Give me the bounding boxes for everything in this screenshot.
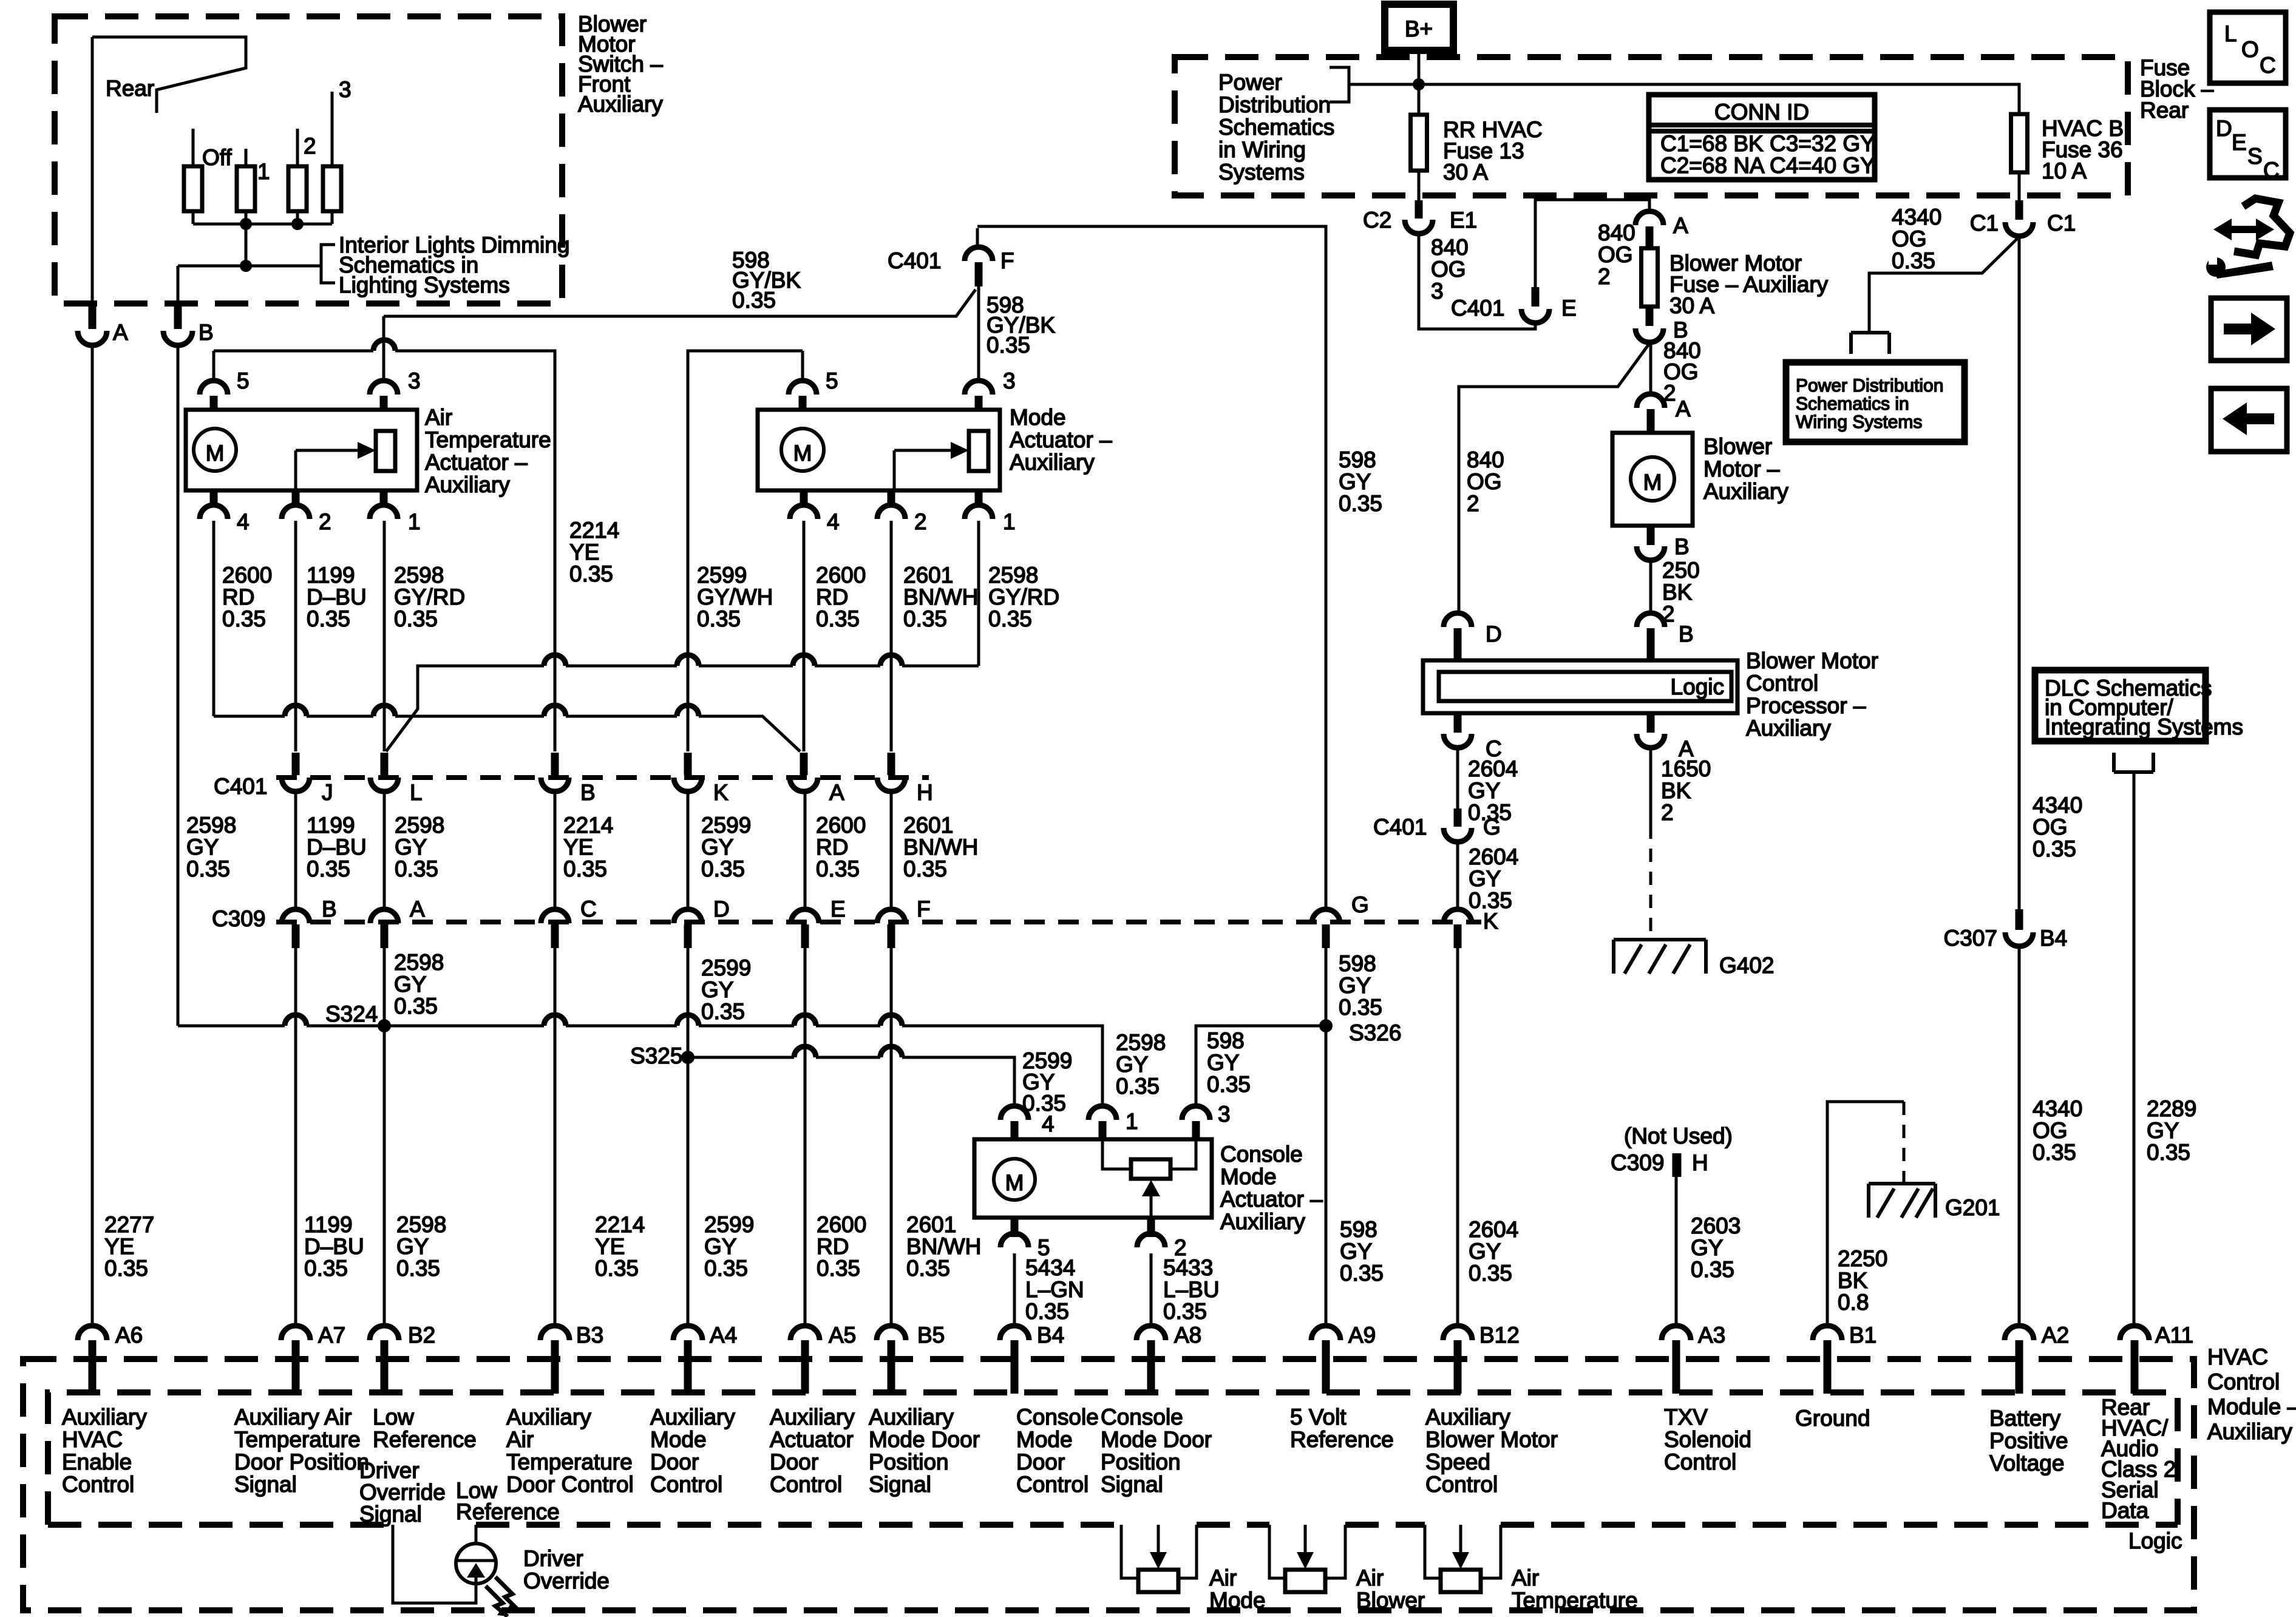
svg-text:Enable: Enable bbox=[62, 1449, 132, 1474]
svg-text:GY: GY bbox=[1339, 973, 1371, 998]
svg-text:B: B bbox=[1674, 534, 1690, 559]
svg-text:C: C bbox=[2260, 53, 2276, 78]
svg-text:Actuator –: Actuator – bbox=[425, 450, 528, 475]
svg-text:C307: C307 bbox=[1944, 926, 1997, 951]
svg-text:Actuator –: Actuator – bbox=[1220, 1187, 1323, 1212]
svg-text:2277: 2277 bbox=[104, 1212, 154, 1237]
svg-text:Schematics in: Schematics in bbox=[1796, 394, 1909, 414]
svg-text:Logic: Logic bbox=[2128, 1528, 2182, 1553]
svg-text:M: M bbox=[1005, 1170, 1024, 1195]
svg-text:GY: GY bbox=[1469, 1239, 1501, 1264]
svg-text:0.35: 0.35 bbox=[701, 999, 745, 1024]
svg-text:Control: Control bbox=[2207, 1369, 2280, 1394]
svg-text:D–BU: D–BU bbox=[307, 835, 367, 859]
svg-text:Ground: Ground bbox=[1795, 1406, 1870, 1431]
svg-text:2: 2 bbox=[1467, 491, 1479, 516]
svg-text:2289: 2289 bbox=[2147, 1096, 2196, 1121]
svg-text:Positive: Positive bbox=[1989, 1428, 2068, 1453]
svg-text:0.35: 0.35 bbox=[903, 856, 947, 881]
svg-text:Control: Control bbox=[1425, 1472, 1498, 1497]
svg-text:Auxiliary: Auxiliary bbox=[869, 1405, 954, 1429]
svg-text:Control: Control bbox=[770, 1472, 842, 1497]
svg-text:0.35: 0.35 bbox=[987, 333, 1030, 358]
svg-text:GY/WH: GY/WH bbox=[697, 585, 773, 609]
svg-text:0.35: 0.35 bbox=[2033, 1140, 2076, 1165]
svg-text:Mode: Mode bbox=[1016, 1427, 1073, 1452]
svg-text:0.35: 0.35 bbox=[1892, 248, 1935, 273]
svg-text:0.35: 0.35 bbox=[395, 856, 438, 881]
svg-text:Auxiliary: Auxiliary bbox=[650, 1405, 735, 1429]
svg-text:Auxiliary: Auxiliary bbox=[62, 1405, 147, 1429]
svg-text:Air: Air bbox=[1209, 1565, 1237, 1590]
svg-text:Air: Air bbox=[425, 405, 452, 430]
svg-text:Rear: Rear bbox=[2140, 98, 2189, 123]
svg-text:2599: 2599 bbox=[704, 1212, 754, 1237]
svg-text:A6: A6 bbox=[115, 1323, 143, 1347]
svg-text:BN/WH: BN/WH bbox=[906, 1234, 981, 1259]
svg-text:0.35: 0.35 bbox=[2147, 1140, 2190, 1165]
svg-text:Wiring Systems: Wiring Systems bbox=[1796, 412, 1922, 432]
svg-text:Mode Door: Mode Door bbox=[869, 1427, 980, 1452]
svg-text:598: 598 bbox=[1340, 1217, 1377, 1242]
svg-text:M: M bbox=[1643, 470, 1662, 495]
svg-text:Systems: Systems bbox=[1218, 160, 1305, 185]
svg-text:GY: GY bbox=[186, 835, 219, 859]
svg-text:C401: C401 bbox=[888, 248, 941, 273]
svg-text:A4: A4 bbox=[710, 1323, 737, 1347]
svg-text:OG: OG bbox=[2033, 1118, 2068, 1143]
svg-text:0.35: 0.35 bbox=[104, 1256, 148, 1281]
svg-text:2598: 2598 bbox=[396, 1212, 446, 1237]
svg-text:A: A bbox=[829, 780, 844, 805]
svg-text:GY: GY bbox=[1340, 1239, 1372, 1264]
svg-text:Signal: Signal bbox=[359, 1502, 422, 1527]
svg-text:Integrating Systems: Integrating Systems bbox=[2045, 714, 2243, 739]
svg-text:GY: GY bbox=[1691, 1235, 1723, 1260]
svg-text:GY: GY bbox=[701, 835, 733, 859]
svg-text:5434: 5434 bbox=[1025, 1255, 1075, 1280]
svg-text:A: A bbox=[410, 897, 425, 921]
svg-text:B: B bbox=[580, 780, 596, 805]
svg-text:0.35: 0.35 bbox=[903, 606, 947, 631]
svg-text:Air: Air bbox=[1512, 1565, 1539, 1590]
svg-text:0.35: 0.35 bbox=[563, 856, 607, 881]
svg-text:1199: 1199 bbox=[307, 813, 355, 838]
svg-text:Processor –: Processor – bbox=[1746, 693, 1866, 718]
svg-text:D–BU: D–BU bbox=[304, 1234, 364, 1259]
svg-text:Position: Position bbox=[1101, 1449, 1181, 1474]
svg-text:2250: 2250 bbox=[1838, 1246, 1887, 1271]
svg-text:L–GN: L–GN bbox=[1025, 1277, 1084, 1302]
svg-text:0.35: 0.35 bbox=[595, 1256, 639, 1281]
svg-text:G201: G201 bbox=[1945, 1195, 2000, 1220]
svg-text:D: D bbox=[2216, 116, 2232, 141]
svg-text:1: 1 bbox=[1003, 509, 1016, 534]
svg-text:Door Control: Door Control bbox=[506, 1472, 634, 1497]
svg-text:Temperature: Temperature bbox=[506, 1449, 633, 1474]
svg-text:HVAC: HVAC bbox=[2207, 1344, 2268, 1369]
svg-text:Schematics: Schematics bbox=[1218, 115, 1334, 140]
svg-text:Console: Console bbox=[1101, 1405, 1183, 1429]
svg-text:F: F bbox=[917, 897, 931, 921]
svg-text:Power Distribution: Power Distribution bbox=[1796, 376, 1943, 396]
svg-text:BN/WH: BN/WH bbox=[903, 835, 978, 859]
svg-text:Reference: Reference bbox=[456, 1499, 560, 1524]
svg-text:0.35: 0.35 bbox=[304, 1256, 348, 1281]
svg-text:GY: GY bbox=[701, 977, 733, 1002]
svg-text:Console: Console bbox=[1016, 1405, 1099, 1429]
svg-text:E: E bbox=[2232, 130, 2247, 155]
svg-text:10 A: 10 A bbox=[2042, 158, 2087, 183]
svg-text:OG: OG bbox=[1598, 242, 1633, 267]
svg-text:2600: 2600 bbox=[222, 563, 272, 588]
svg-text:B12: B12 bbox=[1479, 1323, 1520, 1347]
svg-text:0.35: 0.35 bbox=[1691, 1257, 1734, 1282]
svg-text:GY: GY bbox=[396, 1234, 429, 1259]
svg-text:B4: B4 bbox=[2040, 926, 2067, 951]
svg-text:GY/RD: GY/RD bbox=[394, 585, 465, 609]
svg-text:0.35: 0.35 bbox=[2033, 836, 2076, 861]
svg-text:BN/WH: BN/WH bbox=[903, 585, 978, 609]
svg-text:Signal: Signal bbox=[234, 1472, 297, 1497]
svg-text:2600: 2600 bbox=[817, 1212, 866, 1237]
svg-text:3: 3 bbox=[408, 368, 421, 393]
svg-text:2601: 2601 bbox=[903, 563, 953, 588]
svg-text:Logic: Logic bbox=[1671, 674, 1724, 699]
svg-text:0.35: 0.35 bbox=[697, 606, 741, 631]
svg-text:Console: Console bbox=[1220, 1142, 1303, 1167]
svg-text:BK: BK bbox=[1661, 778, 1691, 803]
svg-text:RD: RD bbox=[817, 1234, 849, 1259]
svg-text:0.35: 0.35 bbox=[1025, 1299, 1069, 1324]
svg-text:OG: OG bbox=[1467, 469, 1502, 494]
svg-text:Temperature: Temperature bbox=[425, 427, 551, 452]
svg-text:Auxiliary: Auxiliary bbox=[1010, 450, 1095, 475]
svg-text:C2: C2 bbox=[1363, 208, 1391, 232]
svg-text:B2: B2 bbox=[408, 1323, 435, 1347]
svg-text:598: 598 bbox=[1339, 951, 1376, 976]
svg-text:L: L bbox=[2224, 21, 2237, 46]
svg-text:S325: S325 bbox=[630, 1043, 682, 1068]
svg-text:0.35: 0.35 bbox=[816, 606, 860, 631]
svg-text:0.35: 0.35 bbox=[988, 606, 1032, 631]
svg-text:3: 3 bbox=[1003, 368, 1016, 393]
svg-text:Module –: Module – bbox=[2207, 1394, 2296, 1419]
svg-text:E1: E1 bbox=[1450, 208, 1477, 232]
svg-text:2598: 2598 bbox=[394, 563, 444, 588]
svg-text:C401: C401 bbox=[1373, 815, 1427, 839]
svg-text:Control: Control bbox=[62, 1472, 134, 1497]
svg-text:C401: C401 bbox=[1451, 296, 1504, 320]
svg-text:0.35: 0.35 bbox=[394, 606, 438, 631]
svg-text:3: 3 bbox=[339, 77, 352, 102]
svg-text:5: 5 bbox=[826, 368, 838, 393]
svg-text:Blower Motor: Blower Motor bbox=[1746, 648, 1878, 673]
svg-text:GY: GY bbox=[2147, 1118, 2179, 1143]
svg-text:D: D bbox=[713, 897, 730, 921]
svg-text:0.35: 0.35 bbox=[1469, 888, 1512, 913]
svg-text:Auxiliary: Auxiliary bbox=[1746, 716, 1831, 741]
svg-text:2601: 2601 bbox=[906, 1212, 956, 1237]
svg-text:Mode: Mode bbox=[1220, 1164, 1277, 1189]
svg-text:Driver: Driver bbox=[359, 1458, 419, 1483]
svg-text:A9: A9 bbox=[1348, 1323, 1376, 1347]
svg-text:E: E bbox=[830, 897, 846, 921]
svg-text:30 A: 30 A bbox=[1669, 293, 1714, 318]
svg-text:Signal: Signal bbox=[1101, 1472, 1163, 1497]
svg-text:Speed: Speed bbox=[1425, 1449, 1490, 1474]
svg-text:D–BU: D–BU bbox=[307, 585, 367, 609]
svg-text:GY/RD: GY/RD bbox=[988, 585, 1059, 609]
svg-text:2214: 2214 bbox=[569, 518, 619, 543]
svg-text:2604: 2604 bbox=[1469, 844, 1518, 869]
svg-text:4: 4 bbox=[1042, 1111, 1055, 1136]
svg-text:Voltage: Voltage bbox=[1989, 1451, 2064, 1476]
svg-text:0.35: 0.35 bbox=[701, 856, 745, 881]
svg-text:C1=68 BK: C1=68 BK bbox=[1660, 131, 1764, 156]
svg-text:Mode: Mode bbox=[1010, 405, 1066, 430]
svg-text:G: G bbox=[1351, 892, 1369, 917]
svg-text:2600: 2600 bbox=[816, 563, 866, 588]
svg-text:K: K bbox=[713, 780, 729, 805]
svg-text:Reference: Reference bbox=[373, 1427, 477, 1452]
svg-text:GY: GY bbox=[1207, 1050, 1239, 1075]
svg-text:Reference: Reference bbox=[1290, 1427, 1394, 1452]
svg-text:OG: OG bbox=[1892, 226, 1927, 251]
svg-text:C2=68 NA: C2=68 NA bbox=[1660, 153, 1765, 178]
svg-text:A: A bbox=[113, 320, 128, 345]
svg-text:Auxiliary: Auxiliary bbox=[1220, 1209, 1305, 1234]
svg-text:Blower: Blower bbox=[1356, 1588, 1425, 1613]
svg-text:Power: Power bbox=[1218, 70, 1282, 95]
svg-text:0.35: 0.35 bbox=[1116, 1074, 1160, 1099]
svg-text:5: 5 bbox=[237, 368, 250, 393]
svg-text:H: H bbox=[917, 780, 933, 805]
svg-text:5 Volt: 5 Volt bbox=[1290, 1405, 1347, 1429]
svg-text:Lighting Systems: Lighting Systems bbox=[339, 273, 510, 297]
svg-text:B1: B1 bbox=[1849, 1323, 1877, 1347]
svg-text:C309: C309 bbox=[212, 906, 265, 931]
svg-text:H: H bbox=[1692, 1150, 1708, 1175]
svg-text:G: G bbox=[1483, 815, 1501, 839]
svg-text:Door: Door bbox=[770, 1449, 818, 1474]
svg-text:A3: A3 bbox=[1698, 1323, 1725, 1347]
svg-text:OG: OG bbox=[2033, 815, 2068, 839]
svg-text:Rear: Rear bbox=[106, 76, 154, 101]
svg-text:2604: 2604 bbox=[1469, 1217, 1518, 1242]
svg-text:B: B bbox=[322, 897, 337, 921]
svg-text:2598: 2598 bbox=[186, 813, 236, 838]
svg-text:840: 840 bbox=[1431, 235, 1469, 260]
svg-text:4: 4 bbox=[827, 509, 840, 534]
svg-text:250: 250 bbox=[1662, 558, 1700, 583]
svg-text:2599: 2599 bbox=[701, 813, 751, 838]
svg-text:Control: Control bbox=[1016, 1472, 1089, 1497]
svg-text:0.35: 0.35 bbox=[704, 1256, 748, 1281]
svg-text:598: 598 bbox=[1207, 1028, 1245, 1053]
svg-text:0.35: 0.35 bbox=[1339, 491, 1382, 516]
svg-text:Temperature: Temperature bbox=[1512, 1588, 1638, 1613]
svg-text:S324: S324 bbox=[325, 1002, 378, 1026]
svg-text:Control: Control bbox=[650, 1472, 722, 1497]
svg-text:Auxiliary: Auxiliary bbox=[770, 1405, 855, 1429]
svg-text:C: C bbox=[2263, 158, 2280, 183]
svg-text:Control: Control bbox=[1664, 1449, 1736, 1474]
svg-text:Door: Door bbox=[650, 1449, 699, 1474]
svg-text:A: A bbox=[1673, 213, 1688, 238]
svg-text:S: S bbox=[2247, 144, 2263, 169]
svg-text:A11: A11 bbox=[2155, 1323, 2193, 1347]
svg-text:Solenoid: Solenoid bbox=[1664, 1427, 1751, 1452]
svg-text:YE: YE bbox=[104, 1234, 134, 1259]
svg-text:2598: 2598 bbox=[1116, 1030, 1166, 1055]
svg-text:2: 2 bbox=[914, 509, 927, 534]
svg-text:in Wiring: in Wiring bbox=[1218, 137, 1306, 162]
svg-text:3: 3 bbox=[1218, 1102, 1231, 1127]
svg-text:0.35: 0.35 bbox=[1469, 1261, 1512, 1286]
svg-text:4340: 4340 bbox=[1892, 205, 1941, 229]
svg-text:C: C bbox=[580, 897, 597, 921]
svg-text:BK: BK bbox=[1662, 580, 1693, 605]
svg-text:1650: 1650 bbox=[1661, 756, 1711, 781]
svg-text:5433: 5433 bbox=[1163, 1255, 1213, 1280]
svg-text:3: 3 bbox=[1431, 279, 1444, 303]
svg-text:Blower: Blower bbox=[1703, 434, 1772, 459]
svg-text:A2: A2 bbox=[2042, 1323, 2069, 1347]
svg-text:OG: OG bbox=[1431, 257, 1466, 282]
svg-text:2214: 2214 bbox=[563, 813, 613, 838]
svg-text:Door: Door bbox=[1016, 1449, 1065, 1474]
svg-text:2604: 2604 bbox=[1468, 756, 1518, 781]
svg-text:0.35: 0.35 bbox=[732, 288, 776, 313]
svg-text:C309: C309 bbox=[1611, 1150, 1664, 1175]
svg-text:B4: B4 bbox=[1037, 1323, 1064, 1347]
svg-text:B5: B5 bbox=[917, 1323, 945, 1347]
svg-text:YE: YE bbox=[569, 540, 599, 564]
svg-text:E: E bbox=[1561, 296, 1577, 320]
svg-text:4340: 4340 bbox=[2033, 793, 2082, 818]
svg-text:0.35: 0.35 bbox=[307, 856, 350, 881]
svg-text:RD: RD bbox=[222, 585, 254, 609]
svg-text:0.8: 0.8 bbox=[1838, 1290, 1869, 1315]
svg-text:Blower Motor: Blower Motor bbox=[1425, 1427, 1558, 1452]
svg-text:S326: S326 bbox=[1349, 1020, 1401, 1045]
svg-text:2600: 2600 bbox=[816, 813, 866, 838]
svg-text:YE: YE bbox=[595, 1234, 625, 1259]
svg-text:Mode: Mode bbox=[650, 1427, 707, 1452]
svg-text:2: 2 bbox=[304, 134, 316, 158]
svg-text:Air: Air bbox=[506, 1427, 534, 1452]
svg-text:J: J bbox=[322, 780, 333, 805]
svg-text:RD: RD bbox=[816, 835, 848, 859]
svg-text:Motor –: Motor – bbox=[1703, 456, 1780, 481]
svg-text:0.35: 0.35 bbox=[569, 561, 613, 586]
svg-text:Control: Control bbox=[1746, 671, 1818, 696]
svg-text:2: 2 bbox=[1598, 264, 1611, 289]
svg-text:GY: GY bbox=[1339, 469, 1371, 494]
svg-text:B3: B3 bbox=[576, 1323, 603, 1347]
svg-text:0.35: 0.35 bbox=[906, 1256, 950, 1281]
svg-text:A: A bbox=[1676, 396, 1691, 421]
svg-text:1: 1 bbox=[1126, 1109, 1138, 1134]
svg-text:2601: 2601 bbox=[903, 813, 953, 838]
svg-text:M: M bbox=[206, 441, 225, 466]
svg-text:GY: GY bbox=[1469, 866, 1501, 891]
svg-text:Auxiliary Air: Auxiliary Air bbox=[234, 1405, 352, 1429]
svg-text:4: 4 bbox=[237, 509, 250, 534]
svg-text:Distribution: Distribution bbox=[1218, 92, 1331, 117]
svg-text:C1: C1 bbox=[2047, 211, 2076, 236]
svg-text:0.35: 0.35 bbox=[396, 1256, 440, 1281]
svg-text:Position: Position bbox=[869, 1449, 949, 1474]
svg-text:0.35: 0.35 bbox=[394, 994, 438, 1019]
svg-text:D: D bbox=[1486, 622, 1502, 646]
svg-text:L: L bbox=[410, 780, 423, 805]
svg-text:1199: 1199 bbox=[304, 1212, 353, 1237]
svg-text:Auxiliary: Auxiliary bbox=[1425, 1405, 1510, 1429]
svg-text:Actuator: Actuator bbox=[770, 1427, 854, 1452]
svg-text:2599: 2599 bbox=[701, 955, 751, 980]
svg-text:0.35: 0.35 bbox=[1207, 1072, 1251, 1097]
svg-text:CONN ID: CONN ID bbox=[1714, 100, 1809, 124]
svg-text:2598: 2598 bbox=[395, 813, 444, 838]
svg-text:0.35: 0.35 bbox=[1163, 1299, 1207, 1324]
svg-text:C401: C401 bbox=[214, 774, 267, 799]
svg-text:A7: A7 bbox=[318, 1323, 345, 1347]
svg-text:840: 840 bbox=[1598, 220, 1635, 245]
svg-text:2598: 2598 bbox=[394, 950, 444, 975]
svg-text:Override: Override bbox=[359, 1480, 446, 1505]
svg-text:Auxiliary: Auxiliary bbox=[578, 92, 663, 117]
svg-text:F: F bbox=[1000, 248, 1014, 273]
svg-text:A5: A5 bbox=[829, 1323, 856, 1347]
svg-text:2599: 2599 bbox=[697, 563, 747, 588]
svg-text:HVAC: HVAC bbox=[62, 1427, 123, 1452]
svg-text:2214: 2214 bbox=[595, 1212, 645, 1237]
svg-text:Battery: Battery bbox=[1989, 1406, 2061, 1431]
svg-text:GY: GY bbox=[395, 835, 427, 859]
svg-text:4340: 4340 bbox=[2033, 1096, 2082, 1121]
svg-text:YE: YE bbox=[563, 835, 593, 859]
svg-text:0.35: 0.35 bbox=[816, 856, 860, 881]
svg-text:G402: G402 bbox=[1719, 953, 1775, 978]
svg-text:Signal: Signal bbox=[869, 1472, 931, 1497]
svg-text:2598: 2598 bbox=[988, 563, 1038, 588]
svg-text:Auxiliary: Auxiliary bbox=[425, 472, 510, 497]
svg-text:B+: B+ bbox=[1405, 16, 1433, 41]
svg-text:GY: GY bbox=[1468, 778, 1500, 803]
svg-text:GY: GY bbox=[704, 1234, 736, 1259]
svg-text:2603: 2603 bbox=[1691, 1213, 1741, 1238]
svg-text:0.35: 0.35 bbox=[1339, 995, 1382, 1020]
svg-text:BK: BK bbox=[1838, 1268, 1868, 1293]
svg-text:TXV: TXV bbox=[1664, 1405, 1708, 1429]
svg-text:840: 840 bbox=[1467, 447, 1504, 472]
svg-text:GY: GY bbox=[394, 972, 426, 997]
svg-text:2: 2 bbox=[1661, 800, 1674, 825]
svg-text:1199: 1199 bbox=[307, 563, 355, 588]
svg-text:C1: C1 bbox=[1970, 211, 1999, 236]
svg-text:Driver: Driver bbox=[523, 1546, 583, 1571]
svg-text:Mode: Mode bbox=[1209, 1588, 1266, 1613]
svg-text:Door Position: Door Position bbox=[234, 1449, 369, 1474]
svg-text:L–BU: L–BU bbox=[1163, 1277, 1220, 1302]
svg-text:598: 598 bbox=[1339, 447, 1376, 472]
svg-text:Override: Override bbox=[523, 1568, 610, 1593]
svg-text:0.35: 0.35 bbox=[307, 606, 350, 631]
svg-text:Auxiliary: Auxiliary bbox=[506, 1405, 591, 1429]
svg-text:0.35: 0.35 bbox=[1340, 1261, 1384, 1286]
